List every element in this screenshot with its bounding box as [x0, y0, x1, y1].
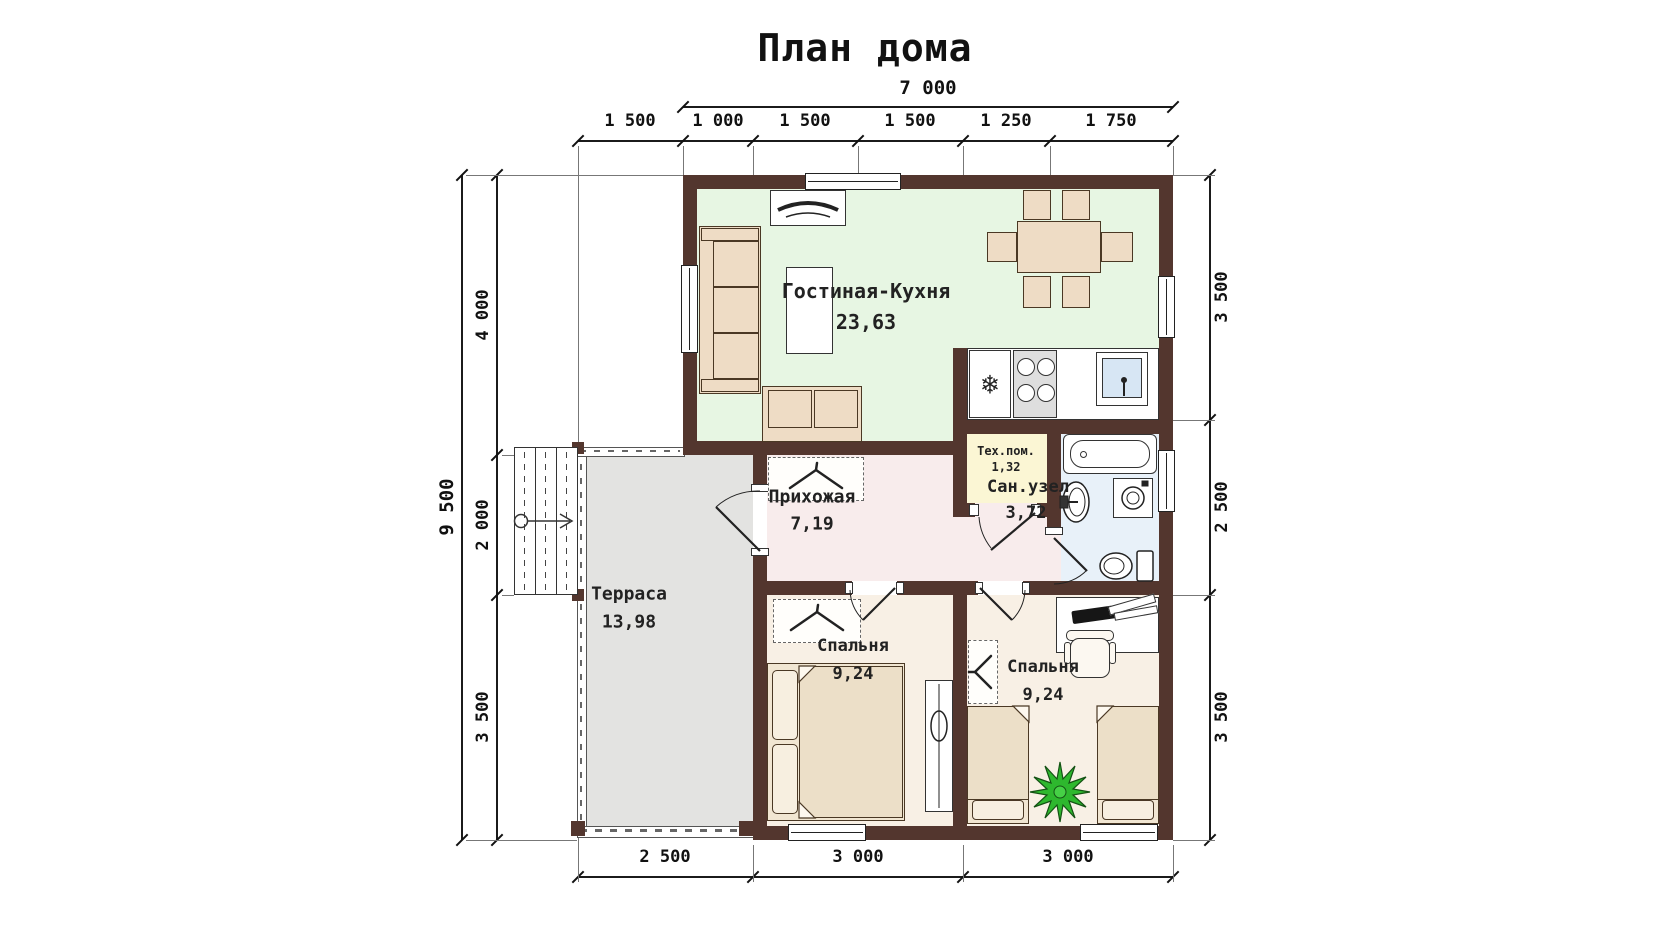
extension-line — [753, 146, 754, 175]
extension-line — [1173, 420, 1215, 421]
stairs-tread-line — [535, 448, 536, 594]
dim-line-left-segments — [496, 175, 498, 840]
wall-segment — [953, 348, 967, 517]
stove-burner — [1017, 358, 1035, 376]
extension-line — [1050, 146, 1051, 175]
dim-line-bottom-segments — [578, 876, 1173, 878]
wardrobe — [968, 640, 998, 704]
stove-burner — [1037, 384, 1055, 402]
dresser-mirror — [925, 680, 953, 812]
dim-label-right-1: 2 500 — [1212, 481, 1232, 532]
extension-line — [963, 845, 964, 882]
stairs-dash — [566, 452, 567, 591]
door-jamb — [751, 484, 769, 492]
room-tech-area: 1,32 — [992, 460, 1021, 474]
stairs-tread-line — [556, 448, 557, 594]
room-hallway-label: Прихожая — [769, 487, 856, 508]
dim-label-bottom-2: 3 000 — [1042, 847, 1093, 867]
dim-label-bottom-0: 2 500 — [639, 847, 690, 867]
terrace-railing-bottom — [577, 826, 755, 838]
window — [805, 173, 901, 190]
bathtub-drain — [1080, 451, 1087, 458]
dining-chair — [1101, 232, 1133, 262]
dim-line-left-total — [461, 175, 463, 840]
window — [1080, 824, 1158, 841]
dim-label-top-5: 1 750 — [1085, 111, 1136, 131]
room-hallway-area: 7,19 — [790, 514, 833, 535]
dining-chair — [1023, 276, 1051, 308]
wall-segment — [897, 581, 978, 595]
door-jamb — [1045, 527, 1063, 535]
extension-line — [1173, 595, 1215, 596]
dim-label-left-2: 3 500 — [473, 691, 493, 742]
extension-line — [753, 845, 754, 882]
dim-label-top-3: 1 500 — [884, 111, 935, 131]
room-tech-label: Тех.пом. — [977, 444, 1035, 458]
terrace-railing-top — [577, 447, 685, 457]
room-terrace-area: 13,98 — [602, 612, 656, 633]
stove-burner — [1037, 358, 1055, 376]
extension-line — [963, 146, 964, 175]
room-terrace — [585, 455, 753, 826]
room-bedroom1-area: 9,24 — [833, 664, 874, 684]
dim-label-bottom-1: 3 000 — [832, 847, 883, 867]
window — [1158, 276, 1175, 338]
extension-line — [1173, 840, 1215, 841]
dim-label-right-0: 3 500 — [1212, 271, 1232, 322]
dim-label-top-0: 1 500 — [604, 111, 655, 131]
terrace-post — [739, 821, 753, 836]
wall-segment — [753, 595, 767, 826]
terrace-railing-dashes — [580, 450, 680, 452]
extension-line — [858, 146, 859, 175]
dim-label-left-0: 4 000 — [473, 289, 493, 340]
room-bedroom1-label: Спальня — [817, 636, 889, 656]
extension-line — [1173, 146, 1174, 175]
sofa-cushion — [713, 287, 759, 333]
wall-segment — [683, 441, 967, 455]
dim-line-right-segments — [1209, 175, 1211, 840]
wall-segment — [683, 175, 1173, 189]
wall-segment — [753, 581, 852, 595]
room-living-label: Гостиная-Кухня — [782, 279, 951, 303]
floor-plan-canvas: План дома 7 000 1 500 1 000 1 500 1 500 … — [0, 0, 1680, 945]
wall-segment — [953, 420, 1173, 434]
dining-chair — [987, 232, 1017, 262]
extension-line — [1173, 175, 1215, 176]
sofa-armrest — [701, 379, 759, 392]
door-jamb — [969, 504, 979, 516]
terrace-railing-dashes — [580, 450, 582, 833]
bed-blanket — [799, 666, 903, 818]
dim-line-top-segments — [578, 140, 1173, 142]
extension-line — [683, 146, 684, 175]
room-bath-area: 3,72 — [1006, 503, 1047, 523]
dim-label-top-total: 7 000 — [899, 77, 956, 99]
extension-line — [578, 146, 579, 447]
dim-label-right-2: 3 500 — [1212, 691, 1232, 742]
terrace-railing-left — [577, 447, 587, 838]
room-living-area: 23,63 — [836, 310, 896, 334]
bed-pillow — [972, 800, 1024, 820]
room-bedroom2-area: 9,24 — [1023, 685, 1064, 705]
extension-line — [1173, 845, 1174, 882]
room-terrace-label: Терраса — [591, 584, 667, 605]
dim-line-top-total — [683, 106, 1173, 108]
stairs-dash — [524, 452, 525, 591]
wall-segment — [953, 595, 967, 840]
door-jamb — [1022, 582, 1030, 594]
terrace-railing-dashes — [580, 829, 750, 832]
washing-machine — [1113, 478, 1153, 518]
bench-cushion — [814, 390, 858, 428]
dim-label-left-1: 2 000 — [473, 499, 493, 550]
dim-label-left-total: 9 500 — [436, 478, 458, 535]
bench-cushion — [768, 390, 812, 428]
desk-chair-armrest — [1109, 642, 1116, 664]
dim-label-top-4: 1 250 — [980, 111, 1031, 131]
bed-pillow — [772, 744, 798, 814]
window — [1158, 450, 1175, 512]
bed-pillow — [772, 670, 798, 740]
dining-chair — [1062, 190, 1090, 220]
extension-line — [578, 836, 579, 882]
tv-cabinet — [770, 190, 846, 226]
window — [788, 824, 866, 841]
bed-blanket — [1097, 706, 1159, 800]
room-bedroom2-label: Спальня — [1007, 657, 1079, 677]
dining-table — [1017, 221, 1101, 273]
dining-chair — [1062, 276, 1090, 308]
extension-line — [466, 840, 577, 841]
fridge-snowflake-icon: ❄ — [982, 368, 999, 401]
sofa-cushion — [713, 241, 759, 287]
wall-segment — [1023, 581, 1173, 595]
door-jamb — [896, 582, 904, 594]
stove-burner — [1017, 384, 1035, 402]
dim-label-top-1: 1 000 — [692, 111, 743, 131]
sofa-cushion — [713, 333, 759, 379]
door-jamb — [845, 582, 853, 594]
door-jamb — [751, 548, 769, 556]
bed-blanket — [967, 706, 1029, 800]
stairs-dash — [545, 452, 546, 591]
dim-label-top-2: 1 500 — [779, 111, 830, 131]
room-bath-label: Сан.узел — [987, 477, 1069, 497]
bed-pillow — [1102, 800, 1154, 820]
terrace-post — [571, 821, 585, 836]
sofa-armrest — [701, 228, 759, 241]
page-title: План дома — [758, 26, 973, 70]
kitchen-sink-basin — [1102, 358, 1142, 398]
dining-chair — [1023, 190, 1051, 220]
extension-line — [466, 175, 683, 176]
extension-line — [502, 595, 514, 596]
door-jamb — [975, 582, 983, 594]
window — [681, 265, 698, 353]
